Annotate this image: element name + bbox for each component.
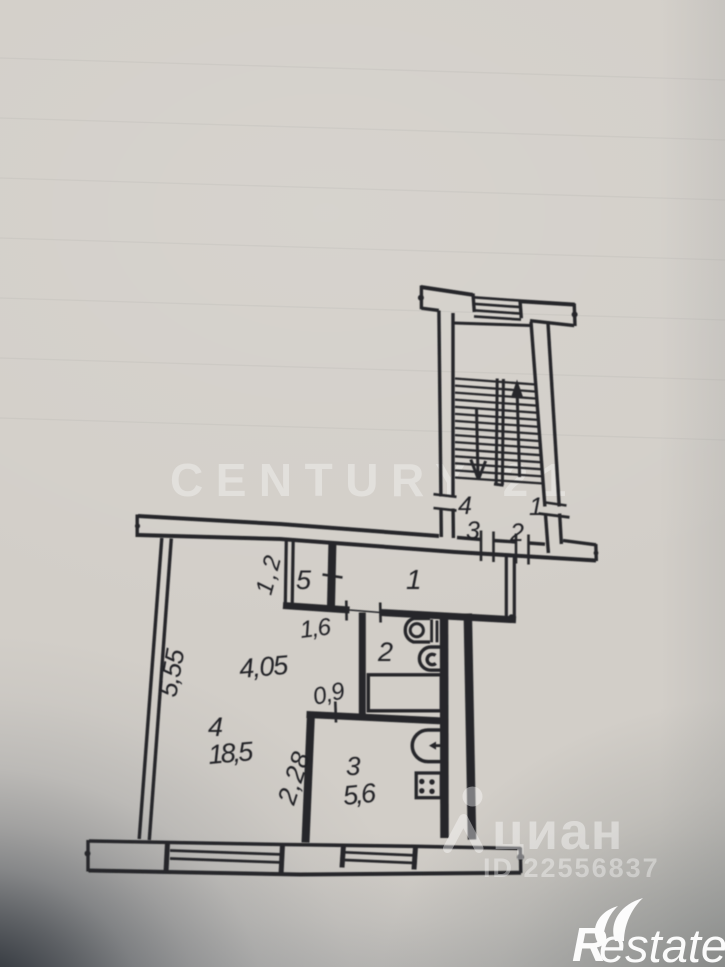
svg-text:2: 2 <box>509 519 524 547</box>
svg-text:1: 1 <box>406 564 422 595</box>
svg-text:5,55: 5,55 <box>152 646 190 699</box>
svg-text:4,05: 4,05 <box>238 650 290 684</box>
svg-text:4: 4 <box>208 712 223 742</box>
svg-text:CENTURY 21: CENTURY 21 <box>170 454 579 506</box>
svg-text:0,9: 0,9 <box>310 677 347 711</box>
svg-text:5: 5 <box>296 565 312 595</box>
svg-text:1,6: 1,6 <box>298 613 333 644</box>
svg-text:3: 3 <box>346 751 361 781</box>
svg-text:5,6: 5,6 <box>341 778 378 811</box>
svg-text:18,5: 18,5 <box>207 736 255 770</box>
svg-text:3: 3 <box>466 517 480 545</box>
svg-text:4: 4 <box>458 492 472 520</box>
svg-text:1,2: 1,2 <box>251 553 287 598</box>
svg-text:2: 2 <box>377 637 393 667</box>
svg-text:1: 1 <box>529 493 543 521</box>
svg-text:ID 22556837: ID 22556837 <box>483 853 660 883</box>
